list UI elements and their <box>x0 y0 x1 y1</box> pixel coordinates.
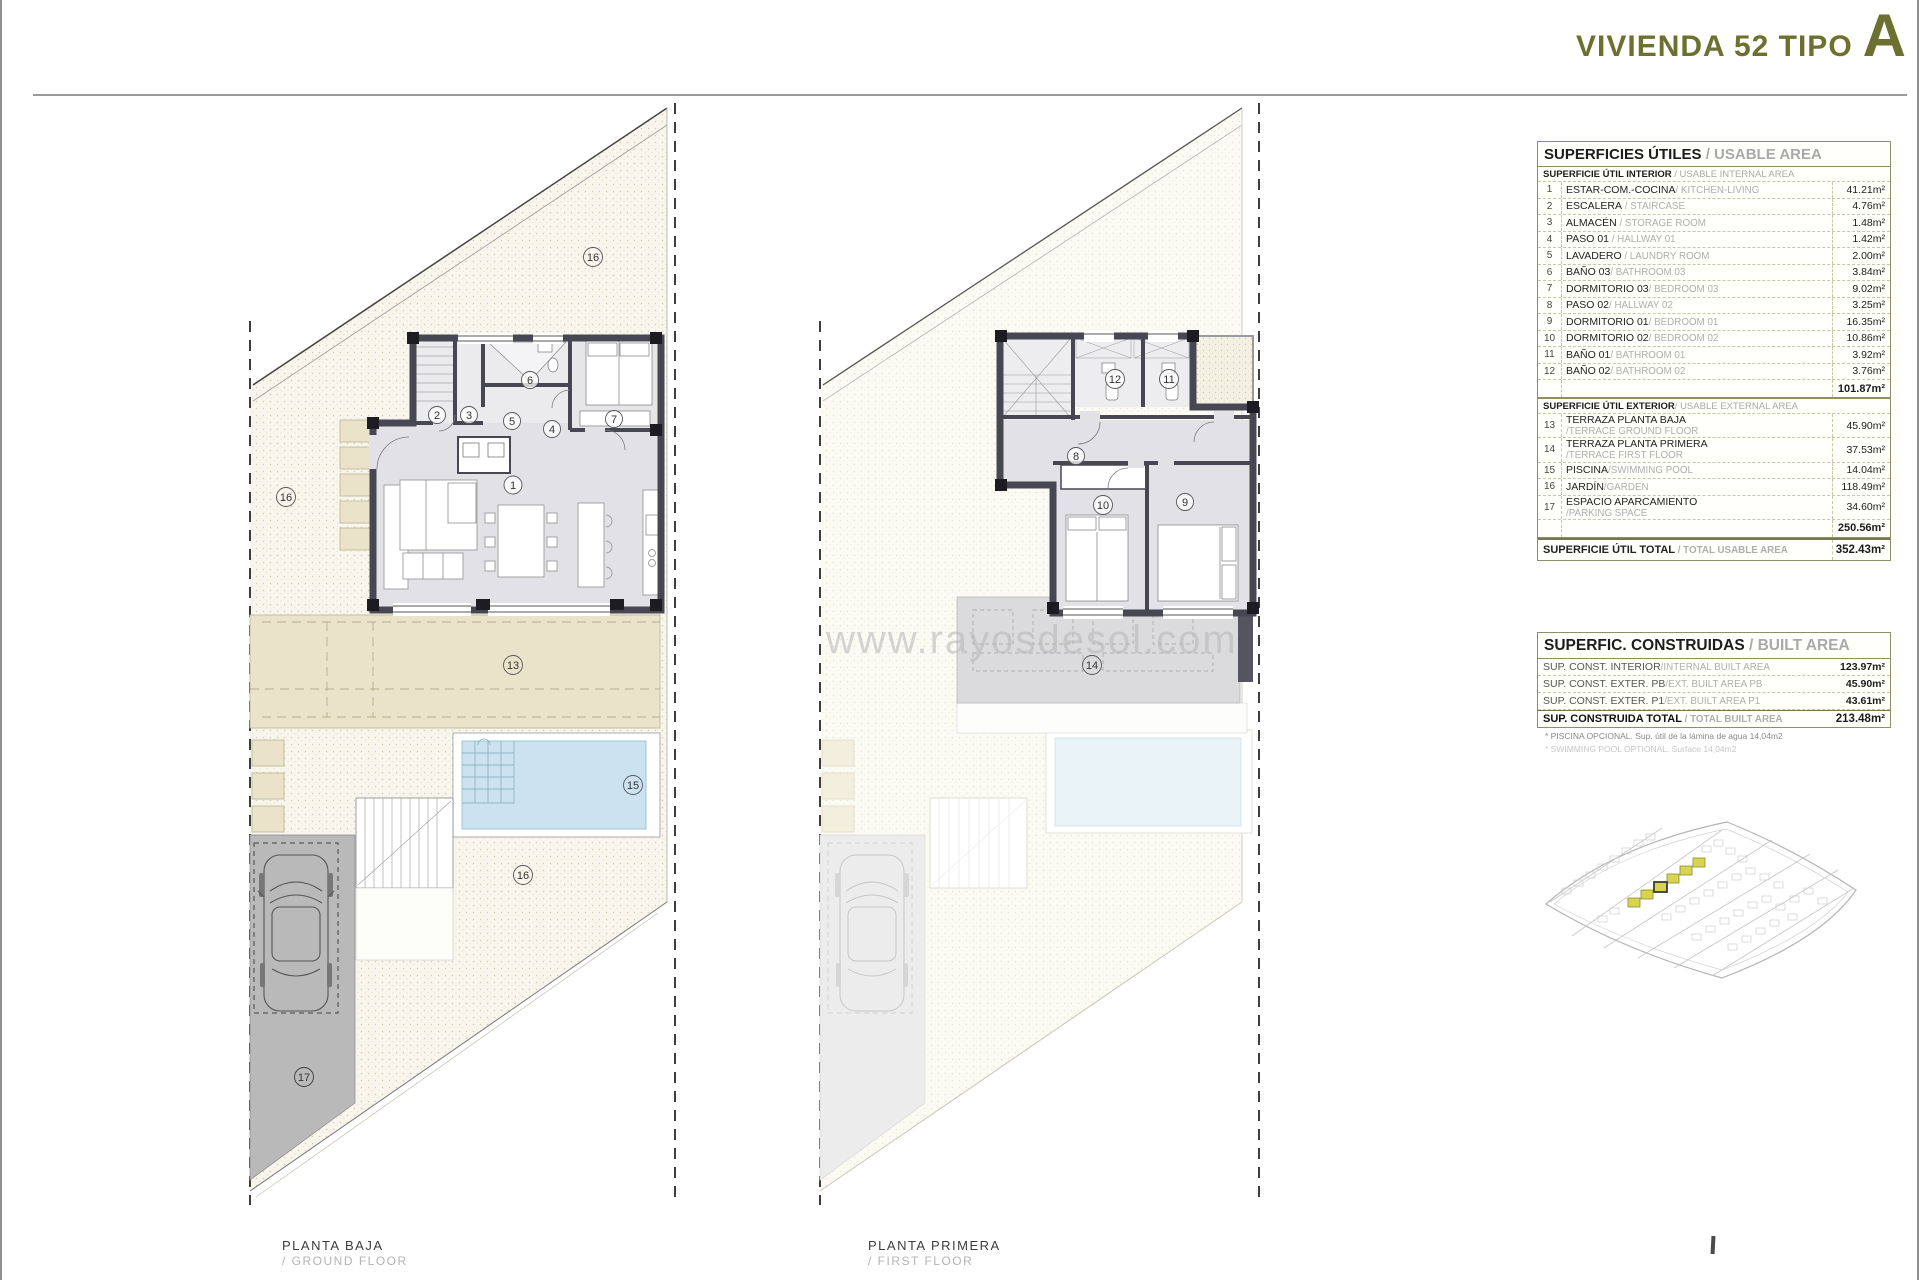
title-type-letter: A <box>1863 6 1906 66</box>
table-row: 11BAÑO 01/ BATHROOM 013.92m² <box>1538 347 1890 364</box>
title-text: VIVIENDA 52 TIPO <box>1576 30 1853 64</box>
table-row: 14TERRAZA PLANTA PRIMERA/TERRACE FIRST F… <box>1538 438 1890 462</box>
svg-text:16: 16 <box>280 492 292 504</box>
svg-text:16: 16 <box>517 870 529 882</box>
table-row: 13TERRAZA PLANTA BAJA/TERRACE GROUND FLO… <box>1538 414 1890 438</box>
table-row: 1ESTAR-COM.-COCINA/ KITCHEN-LIVING41.21m… <box>1538 182 1890 199</box>
svg-text:4: 4 <box>549 424 555 436</box>
svg-text:10: 10 <box>1097 500 1109 512</box>
svg-text:9: 9 <box>1182 497 1188 509</box>
table-row: 17ESPACIO APARCAMIENTO/PARKING SPACE34.6… <box>1538 496 1890 520</box>
ground-floor-plan: 1 2 3 4 5 6 7 13 15 16 16 16 17 <box>248 85 678 1205</box>
built-total-row: SUP. CONSTRUIDA TOTAL / TOTAL BUILT AREA… <box>1538 710 1890 727</box>
table-row: SUP. CONST. EXTER. P1/EXT. BUILT AREA P1… <box>1538 693 1890 710</box>
page-tick-mark <box>1711 1236 1716 1254</box>
table-row: 5LAVADERO / LAUNDRY ROOM2.00m² <box>1538 248 1890 265</box>
usable-total-row: SUPERFICIE ÚTIL TOTAL / TOTAL USABLE ARE… <box>1538 538 1890 560</box>
svg-text:12: 12 <box>1109 374 1121 386</box>
svg-text:13: 13 <box>507 660 519 672</box>
footnote-es: * PISCINA OPCIONAL. Sup. útil de la lámi… <box>1545 731 1783 741</box>
table-row: 4PASO 01 / HALLWAY 011.42m² <box>1538 232 1890 249</box>
table-row: 9DORMITORIO 01/ BEDROOM 0116.35m² <box>1538 314 1890 331</box>
usable-area-table: SUPERFICIES ÚTILES / USABLE AREA SUPERFI… <box>1537 141 1891 561</box>
interior-subtotal-row: 101.87m² <box>1538 380 1890 398</box>
table-row: 16JARDÍN/GARDEN118.49m² <box>1538 479 1890 496</box>
table-row: 12BAÑO 02/ BATHROOM 023.76m² <box>1538 364 1890 381</box>
svg-text:5: 5 <box>509 416 515 428</box>
built-table-title: SUPERFIC. CONSTRUIDAS / BUILT AREA <box>1538 633 1890 659</box>
selected-plot-52 <box>1654 882 1667 892</box>
exterior-stairs <box>356 798 453 960</box>
svg-text:6: 6 <box>527 375 533 387</box>
svg-text:17: 17 <box>298 1072 310 1084</box>
usable-table-title: SUPERFICIES ÚTILES / USABLE AREA <box>1538 142 1890 167</box>
table-row: 7DORMITORIO 03/ BEDROOM 039.02m² <box>1538 281 1890 298</box>
page-edge-right <box>1917 0 1919 1280</box>
svg-text:7: 7 <box>611 414 617 426</box>
table-row: 15PISCINA/SWIMMING POOL14.04m² <box>1538 463 1890 480</box>
table-row: 8PASO 02/ HALLWAY 023.25m² <box>1538 298 1890 315</box>
interior-section-header: SUPERFICIE ÚTIL INTERIOR / USABLE INTERN… <box>1538 167 1890 182</box>
svg-text:8: 8 <box>1073 451 1079 463</box>
svg-text:14: 14 <box>1086 660 1098 672</box>
svg-text:15: 15 <box>627 780 639 792</box>
table-row: 3ALMACÉN / STORAGE ROOM1.48m² <box>1538 215 1890 232</box>
page-edge-left <box>0 0 2 1280</box>
site-location-map <box>1542 818 1862 984</box>
sheet-title: VIVIENDA 52 TIPO A <box>1576 6 1906 66</box>
terrace-ground <box>250 615 660 728</box>
svg-text:16: 16 <box>587 252 599 264</box>
first-floor-plan: 8 9 10 11 12 14 <box>818 85 1263 1205</box>
architectural-sheet: VIVIENDA 52 TIPO A <box>0 0 1920 1280</box>
ground-floor-label: PLANTA BAJA / GROUND FLOOR <box>282 1238 408 1269</box>
svg-text:11: 11 <box>1163 374 1174 386</box>
table-row: 6BAÑO 03/ BATHROOM 033.84m² <box>1538 265 1890 282</box>
svg-text:1: 1 <box>510 480 516 492</box>
exterior-section-header: SUPERFICIE ÚTIL EXTERIOR/ USABLE EXTERNA… <box>1538 398 1890 414</box>
footnote-en: * SWIMMING POOL OPTIONAL. Surface 14,04m… <box>1545 744 1736 754</box>
built-area-table: SUPERFIC. CONSTRUIDAS / BUILT AREA SUP. … <box>1537 632 1891 728</box>
first-floor-label: PLANTA PRIMERA / FIRST FLOOR <box>868 1238 1001 1269</box>
table-row: 10DORMITORIO 02/ BEDROOM 0210.86m² <box>1538 331 1890 348</box>
exterior-subtotal-row: 250.56m² <box>1538 520 1890 538</box>
table-row: SUP. CONST. EXTER. PB/EXT. BUILT AREA PB… <box>1538 676 1890 693</box>
table-row: 2ESCALERA / STAIRCASE4.76m² <box>1538 199 1890 216</box>
svg-text:2: 2 <box>434 410 440 422</box>
table-row: SUP. CONST. INTERIOR/INTERNAL BUILT AREA… <box>1538 659 1890 676</box>
svg-text:3: 3 <box>466 410 472 422</box>
house-ground-floor <box>367 332 662 616</box>
